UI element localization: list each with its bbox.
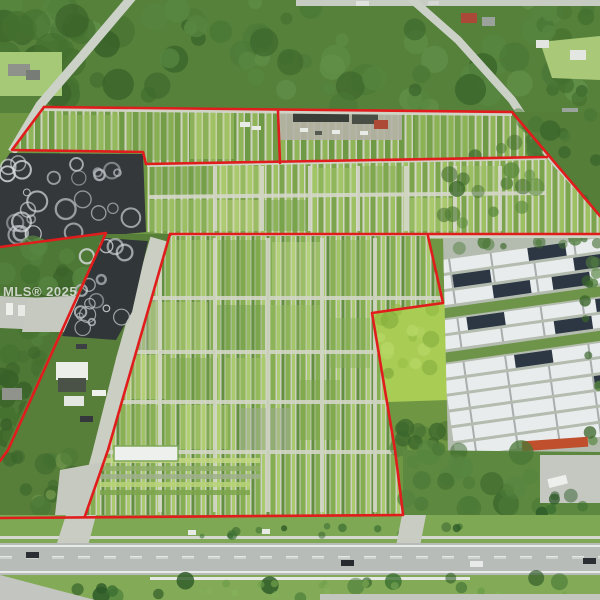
parked-car-dark [80, 416, 93, 422]
highway-lanes [0, 543, 600, 575]
median-curb [150, 577, 470, 580]
car-dark [341, 560, 354, 566]
highway-frontage [0, 515, 600, 600]
west-shed [2, 388, 22, 400]
aerial-photo: MLS® 2025 [0, 0, 600, 600]
greenhouse-complex [428, 232, 600, 457]
shade-house-1 [0, 153, 146, 246]
car-dark [26, 552, 39, 558]
southeast-trees-band [397, 440, 600, 521]
top-crossroad [296, 0, 600, 6]
roadside-sign [188, 530, 196, 535]
car-dark [583, 558, 596, 564]
mls-watermark: MLS® 2025 [3, 284, 77, 299]
car-white [470, 561, 483, 567]
small-shed [64, 396, 84, 406]
parked-car-white [92, 390, 106, 396]
aerial-scene [0, 0, 600, 600]
roadside-sign [262, 529, 270, 534]
middle-parcel-field [147, 157, 600, 234]
white-greenhouse-building [114, 446, 178, 461]
